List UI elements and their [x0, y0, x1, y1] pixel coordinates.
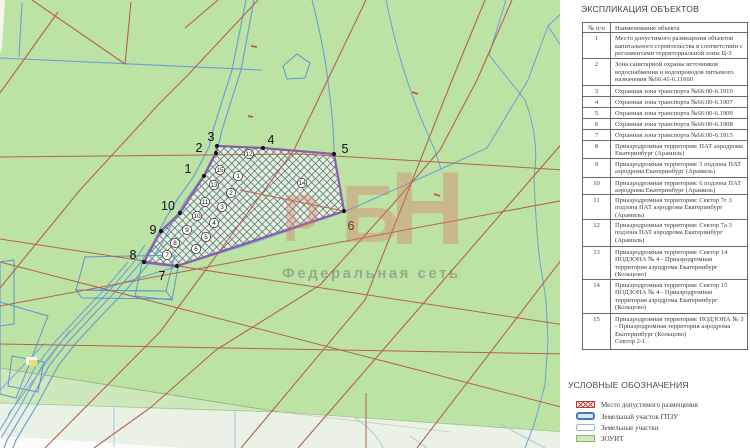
svg-text:5: 5: [204, 234, 208, 241]
svg-text:10: 10: [193, 213, 201, 220]
svg-text:3: 3: [220, 204, 224, 211]
svg-text:Федеральная сеть: Федеральная сеть: [282, 265, 461, 282]
svg-text:9: 9: [150, 223, 157, 237]
svg-text:5: 5: [342, 142, 349, 156]
svg-text:3: 3: [208, 130, 215, 144]
svg-text:4: 4: [212, 220, 216, 227]
svg-text:Н: Н: [390, 151, 465, 267]
svg-text:15: 15: [216, 167, 224, 174]
svg-text:1: 1: [185, 162, 192, 176]
svg-text:1: 1: [236, 173, 240, 180]
svg-text:10: 10: [161, 199, 175, 213]
svg-text:6: 6: [194, 246, 198, 253]
svg-text:7: 7: [165, 252, 169, 259]
svg-text:12: 12: [245, 151, 253, 158]
svg-text:4: 4: [268, 133, 275, 147]
svg-text:р: р: [282, 173, 320, 242]
svg-text:7: 7: [159, 269, 166, 283]
svg-text:9: 9: [185, 227, 189, 234]
svg-text:13: 13: [210, 182, 218, 189]
svg-text:2: 2: [196, 141, 203, 155]
svg-text:8: 8: [173, 240, 177, 247]
svg-text:8: 8: [130, 248, 137, 262]
svg-text:11: 11: [202, 199, 209, 206]
svg-text:2: 2: [229, 190, 233, 197]
